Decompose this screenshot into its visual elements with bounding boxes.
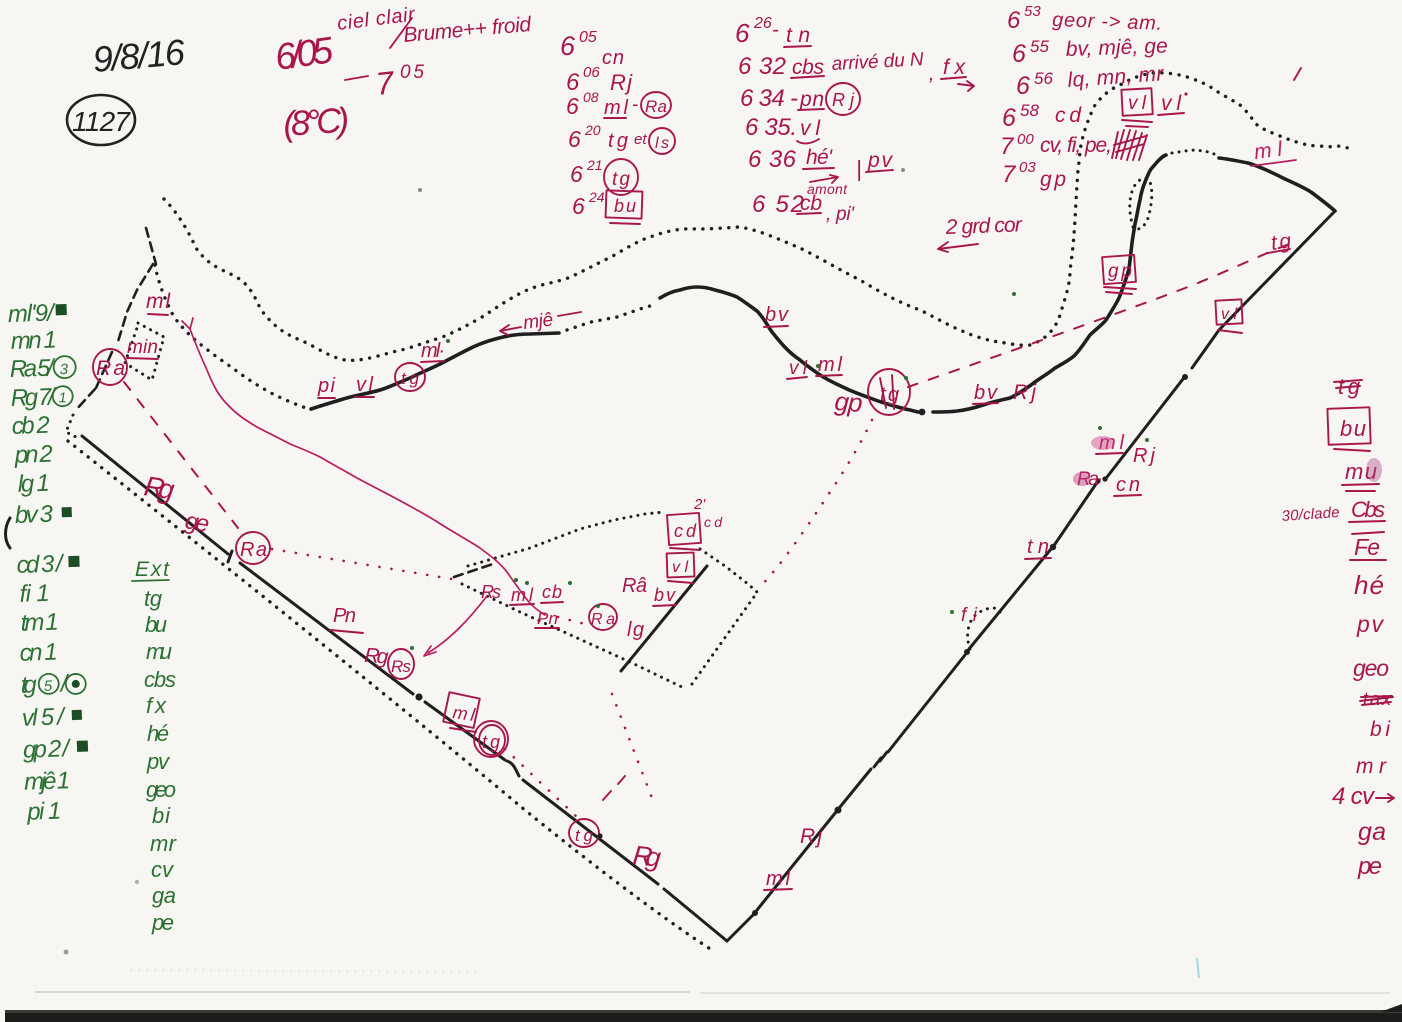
svg-text:vl: vl [789,358,808,379]
svg-text:ml·: ml· [421,340,445,362]
svg-text:ml: ml [146,290,171,313]
svg-text:cb: cb [800,192,822,215]
svg-text:ml: ml [766,868,791,890]
svg-text:hé': hé' [806,146,833,169]
svg-text:9/8/16: 9/8/16 [91,31,187,80]
svg-text:Rj: Rj [1133,445,1156,467]
svg-text:Rj: Rj [800,825,823,848]
svg-text:ml: ml [451,702,477,725]
svg-text:Ra: Ra [96,357,125,380]
svg-text:pe: pe [151,910,174,935]
svg-text:ml: ml [1253,138,1285,164]
svg-text:et: et [634,131,647,148]
svg-text:cv, fi, pe,: cv, fi, pe, [1040,134,1112,157]
svg-text:tg: tg [608,130,628,152]
svg-text:Rj: Rj [610,70,633,95]
svg-text:-: - [772,19,779,41]
svg-text:26: 26 [753,15,772,32]
svg-text:1: 1 [58,389,66,405]
svg-text:tg: tg [482,732,500,752]
svg-text:6: 6 [1007,7,1021,34]
svg-text:6: 6 [572,193,585,219]
svg-text:6: 6 [560,31,576,61]
svg-text:bu: bu [1340,416,1366,441]
svg-text:1127: 1127 [72,106,131,137]
svg-text:bv, mjê, ge: bv, mjê, ge [1065,34,1168,61]
svg-text:fx: fx [943,56,967,79]
svg-text:Pn: Pn [333,605,356,627]
svg-text:7: 7 [1000,133,1015,160]
svg-text:03: 03 [1019,159,1036,176]
svg-text:cd: cd [674,521,697,541]
svg-text:ml: ml [818,354,843,376]
svg-text:56: 56 [1034,69,1053,88]
svg-text:Ra: Ra [645,97,667,116]
svg-text:20: 20 [584,122,601,138]
svg-text:fi 1: fi 1 [19,580,50,608]
svg-text:6: 6 [570,161,583,187]
svg-text:2': 2' [693,496,706,513]
svg-text:bv 3: bv 3 [14,501,54,529]
svg-text:ml: ml [604,97,629,119]
svg-text:58: 58 [1020,101,1039,120]
svg-text:cn 1: cn 1 [19,639,58,667]
svg-text:geo: geo [1353,655,1389,681]
svg-text:ga: ga [1358,818,1386,846]
svg-text:pn: pn [799,88,824,111]
svg-text:Rs: Rs [391,657,412,676]
svg-text:6: 6 [1016,72,1030,100]
svg-text:hé: hé [1354,570,1384,600]
svg-text:tg: tg [880,384,899,406]
svg-text:Ra 5/: Ra 5/ [9,354,56,383]
svg-text:6 36: 6 36 [748,146,797,173]
svg-text:Rg: Rg [631,840,662,873]
svg-text:3: 3 [59,361,69,378]
svg-text:tn: tn [786,24,810,47]
svg-text:cd: cd [704,514,723,530]
svg-text:6: 6 [566,69,580,96]
svg-text:6: 6 [568,126,581,152]
svg-text:21: 21 [586,157,603,173]
svg-text:Cbs: Cbs [1351,497,1385,522]
svg-text:cd 3 /: cd 3 / [16,550,65,579]
svg-text:cv: cv [151,857,175,882]
svg-text:mjê: mjê [522,309,554,333]
svg-text:6 32: 6 32 [738,53,786,80]
svg-text:2 grd cor: 2 grd cor [944,213,1023,239]
svg-text:min: min [127,337,158,358]
svg-text:hé: hé [147,721,169,746]
svg-text:,: , [929,63,935,85]
svg-text:cn: cn [602,47,624,69]
svg-text:6: 6 [1002,104,1016,132]
svg-text:cb 2: cb 2 [11,412,50,440]
svg-text:mjê 1: mjê 1 [24,767,71,796]
svg-text:gp: gp [834,386,864,418]
svg-text:geo: geo [146,777,176,802]
svg-text:tm 1: tm 1 [20,608,59,636]
svg-text:24: 24 [588,189,605,205]
svg-text:53: 53 [1024,3,1041,20]
svg-text:ga: ga [152,883,176,908]
svg-text:mn 1: mn 1 [10,326,57,355]
svg-text:tg: tg [144,586,163,611]
svg-text:geor -> am.: geor -> am. [1052,9,1163,35]
svg-text:Ext: Ext [135,558,170,581]
svg-text:gp 2 /: gp 2 / [23,735,72,764]
svg-text:tn: tn [1027,536,1049,558]
svg-text:6 35.: 6 35. [745,114,797,141]
svg-text:6: 6 [1012,40,1026,68]
svg-text:Rg: Rg [364,644,390,669]
svg-text:tg: tg [575,826,594,845]
svg-text:vl 5 /: vl 5 / [21,703,66,732]
svg-text:Râ: Râ [622,575,647,597]
svg-text:mu: mu [146,639,172,664]
svg-text:4 cv: 4 cv [1332,783,1376,810]
svg-text:cb: cb [542,582,562,602]
svg-text:cn: cn [1116,474,1140,496]
svg-text:mr: mr [150,831,178,856]
svg-text:pe: pe [1357,853,1382,880]
svg-text:5: 5 [44,678,54,695]
svg-text:-: - [632,94,638,114]
svg-text:00: 00 [1017,131,1034,148]
svg-text:6: 6 [566,93,579,119]
svg-text:08: 08 [583,89,599,105]
svg-text:Rg 7/: Rg 7/ [10,383,57,412]
svg-text:ml: ml [511,585,534,605]
svg-text:Rg: Rg [142,470,177,505]
svg-text:6/05: 6/05 [272,29,336,78]
svg-text:|: | [856,156,862,181]
svg-text:Pn: Pn [537,609,558,628]
svg-text:Rj: Rj [1013,381,1037,404]
svg-text:7: 7 [1002,161,1017,188]
svg-text:pi: pi [317,375,336,397]
svg-text:ml'9/: ml'9/ [7,299,56,328]
svg-text:lg: lg [627,619,644,641]
svg-text:05: 05 [579,29,597,46]
svg-text:tg: tg [20,671,38,699]
svg-text:(8°C): (8°C) [282,100,351,144]
svg-text:vl: vl [1128,93,1147,114]
svg-text:bu: bu [145,612,167,637]
svg-text:Rj: Rj [832,90,855,110]
svg-text:cbs: cbs [144,667,176,692]
svg-text:bu: bu [614,196,636,216]
svg-text:, pi': , pi' [826,204,855,225]
svg-text:Fe: Fe [1354,534,1380,560]
svg-text:ls: ls [655,135,669,152]
svg-text:6: 6 [735,18,750,48]
svg-text:ge: ge [183,507,211,538]
svg-text:06: 06 [583,64,600,81]
svg-text:tg: tg [612,169,630,190]
svg-text:vl: vl [356,374,374,396]
svg-text:fx: fx [146,693,167,718]
svg-text:bi: bi [152,803,171,828]
svg-text:mr: mr [1356,755,1387,778]
svg-text:Rs: Rs [481,582,501,602]
svg-text:lg 1: lg 1 [17,470,50,498]
svg-text:tg: tg [401,369,420,388]
svg-text:cd: cd [1055,104,1082,127]
svg-text:pv: pv [146,749,171,774]
svg-text:55: 55 [1030,37,1049,56]
svg-text:pi 1: pi 1 [26,798,62,826]
svg-text:bi: bi [1370,718,1391,741]
svg-text:pn 2: pn 2 [13,441,53,469]
svg-text:6 34 -: 6 34 - [740,85,798,112]
svg-text:Ra: Ra [240,539,267,561]
